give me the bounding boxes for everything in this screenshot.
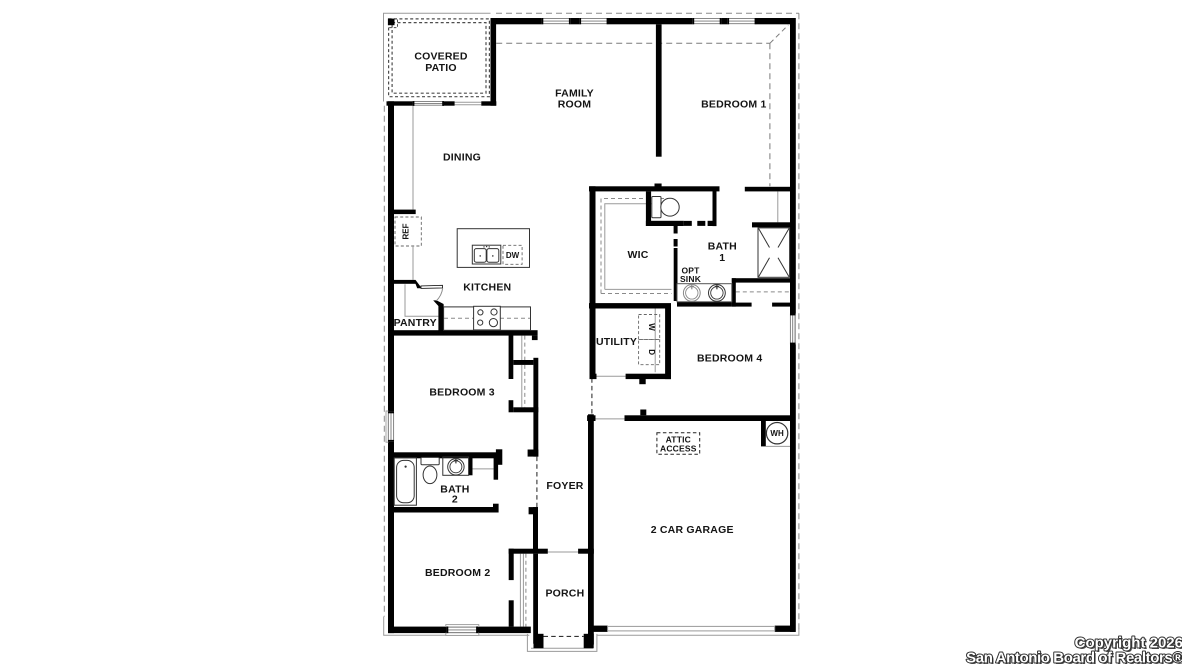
svg-text:ACCESS: ACCESS [660, 443, 697, 453]
svg-text:FAMILY: FAMILY [555, 87, 594, 99]
svg-text:UTILITY: UTILITY [596, 336, 637, 348]
svg-text:DW: DW [506, 251, 520, 260]
svg-text:KITCHEN: KITCHEN [463, 281, 511, 293]
svg-text:ROOM: ROOM [558, 99, 592, 111]
svg-text:BEDROOM 3: BEDROOM 3 [429, 387, 494, 399]
svg-text:D: D [647, 349, 656, 355]
svg-text:PORCH: PORCH [545, 588, 584, 600]
svg-text:REF: REF [401, 223, 410, 239]
svg-text:San Antonio Board of Realtors®: San Antonio Board of Realtors® [966, 650, 1182, 665]
svg-text:BEDROOM 2: BEDROOM 2 [425, 567, 490, 579]
svg-text:WH: WH [770, 429, 784, 438]
svg-text:BEDROOM 1: BEDROOM 1 [701, 98, 766, 110]
svg-text:PANTRY: PANTRY [394, 317, 437, 329]
svg-text:2 CAR GARAGE: 2 CAR GARAGE [651, 524, 734, 536]
svg-text:PATIO: PATIO [425, 62, 457, 74]
svg-text:FOYER: FOYER [546, 480, 583, 492]
svg-text:2: 2 [452, 493, 458, 505]
svg-text:BEDROOM 4: BEDROOM 4 [697, 352, 762, 364]
svg-text:DINING: DINING [443, 152, 481, 164]
svg-text:WIC: WIC [627, 249, 648, 261]
svg-text:COVERED: COVERED [414, 50, 468, 62]
svg-text:W: W [647, 323, 656, 331]
svg-text:SINK: SINK [680, 274, 702, 284]
svg-text:1: 1 [719, 252, 725, 264]
svg-text:BATH: BATH [708, 240, 737, 252]
